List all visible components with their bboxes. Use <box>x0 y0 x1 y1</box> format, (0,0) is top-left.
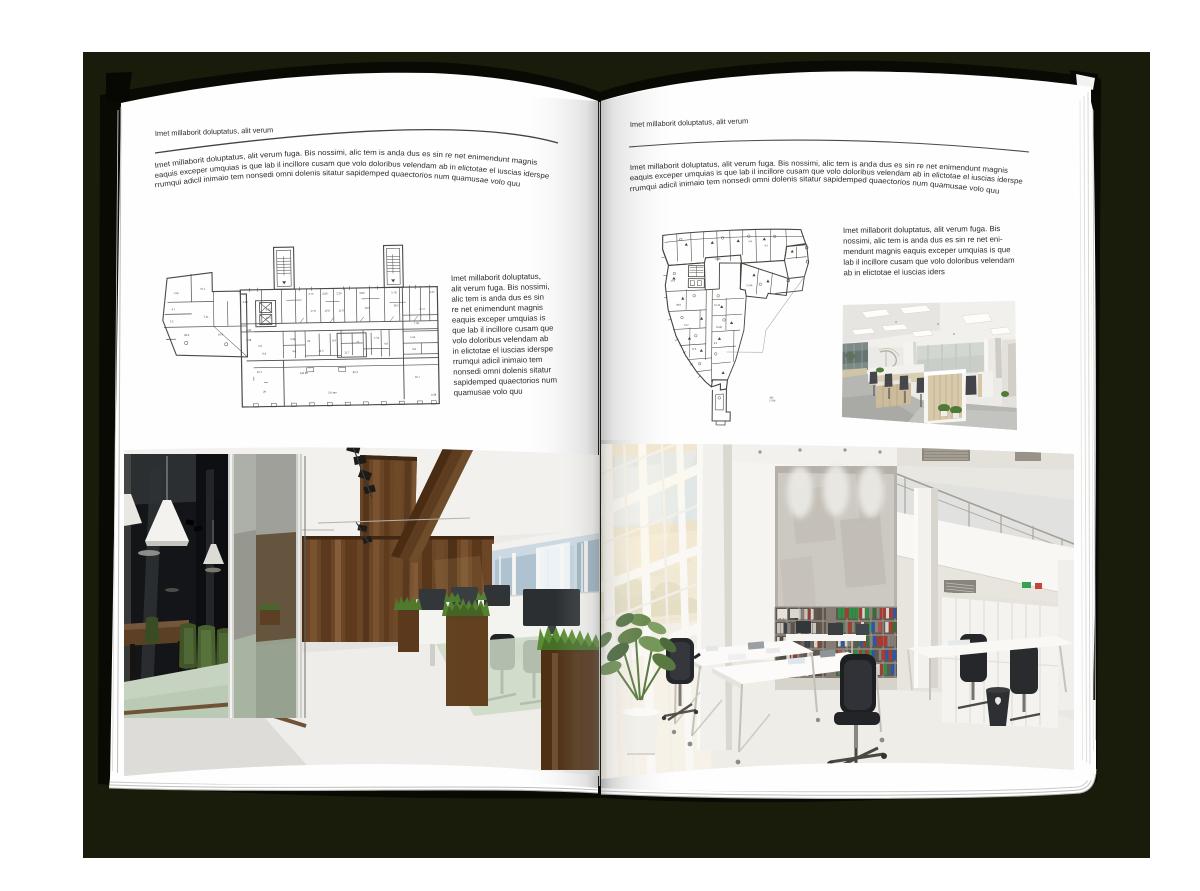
svg-text:7.34: 7.34 <box>414 321 420 325</box>
svg-text:38.6: 38.6 <box>676 304 681 307</box>
svg-text:2-й зал: 2-й зал <box>328 390 337 394</box>
svg-text:26.6: 26.6 <box>184 333 190 337</box>
svg-text:2.98: 2.98 <box>246 338 252 342</box>
svg-text:28.5: 28.5 <box>394 303 400 307</box>
svg-text:17.66: 17.66 <box>769 399 776 402</box>
svg-text:4.8: 4.8 <box>292 349 296 353</box>
svg-text:1.45: 1.45 <box>429 290 435 294</box>
svg-text:2.80: 2.80 <box>322 292 328 296</box>
svg-text:17.85: 17.85 <box>715 258 722 261</box>
svg-text:10.4: 10.4 <box>218 332 224 336</box>
svg-text:12.8: 12.8 <box>670 279 675 282</box>
svg-text:9.8: 9.8 <box>262 352 266 356</box>
svg-text:16.86: 16.86 <box>716 326 723 329</box>
svg-text:11.7: 11.7 <box>344 350 349 354</box>
svg-text:14.5: 14.5 <box>318 349 324 353</box>
svg-text:1.54: 1.54 <box>374 336 380 340</box>
svg-text:4.43: 4.43 <box>246 328 252 332</box>
svg-text:10.40: 10.40 <box>714 304 721 307</box>
svg-text:50.7: 50.7 <box>415 375 421 379</box>
svg-text:11.8: 11.8 <box>339 308 344 312</box>
svg-text:2.30: 2.30 <box>336 291 342 295</box>
svg-text:37.1: 37.1 <box>200 287 206 291</box>
svg-text:12.66: 12.66 <box>746 284 753 287</box>
svg-text:5.78: 5.78 <box>391 290 397 294</box>
svg-text:3.72: 3.72 <box>266 307 272 311</box>
svg-text:Imet millaborit doluptatus, al: Imet millaborit doluptatus, alit verum f… <box>843 224 1001 235</box>
svg-text:18.5: 18.5 <box>365 306 371 310</box>
svg-text:3.98: 3.98 <box>290 337 296 341</box>
svg-text:14.2: 14.2 <box>684 324 689 327</box>
svg-text:quamusae volo quu: quamusae volo quu <box>454 387 523 398</box>
svg-text:37.2: 37.2 <box>420 307 426 311</box>
svg-text:8.4: 8.4 <box>332 338 336 342</box>
svg-text:4.8: 4.8 <box>384 341 388 345</box>
svg-text:21.4: 21.4 <box>266 315 272 319</box>
svg-text:11.6: 11.6 <box>692 348 697 351</box>
svg-text:4.7: 4.7 <box>172 307 176 311</box>
svg-text:4.8: 4.8 <box>258 344 262 348</box>
svg-text:5.54: 5.54 <box>410 335 416 339</box>
svg-text:12.1: 12.1 <box>257 370 263 374</box>
svg-text:6.8: 6.8 <box>412 347 416 351</box>
svg-text:142.88: 142.88 <box>300 371 309 375</box>
svg-text:1.98: 1.98 <box>242 300 248 304</box>
svg-text:17.8: 17.8 <box>311 309 317 313</box>
svg-text:2.75: 2.75 <box>308 292 314 296</box>
svg-text:9.38: 9.38 <box>431 393 437 397</box>
svg-text:10.8: 10.8 <box>325 308 331 312</box>
svg-text:3.89: 3.89 <box>359 291 365 295</box>
svg-text:85.3: 85.3 <box>353 370 359 374</box>
svg-text:5.11: 5.11 <box>204 315 209 319</box>
svg-text:5.2: 5.2 <box>170 319 174 323</box>
svg-text:ab in elictotae el iuscias ide: ab in elictotae el iuscias iders <box>843 267 945 277</box>
svg-text:7.06: 7.06 <box>173 291 179 295</box>
